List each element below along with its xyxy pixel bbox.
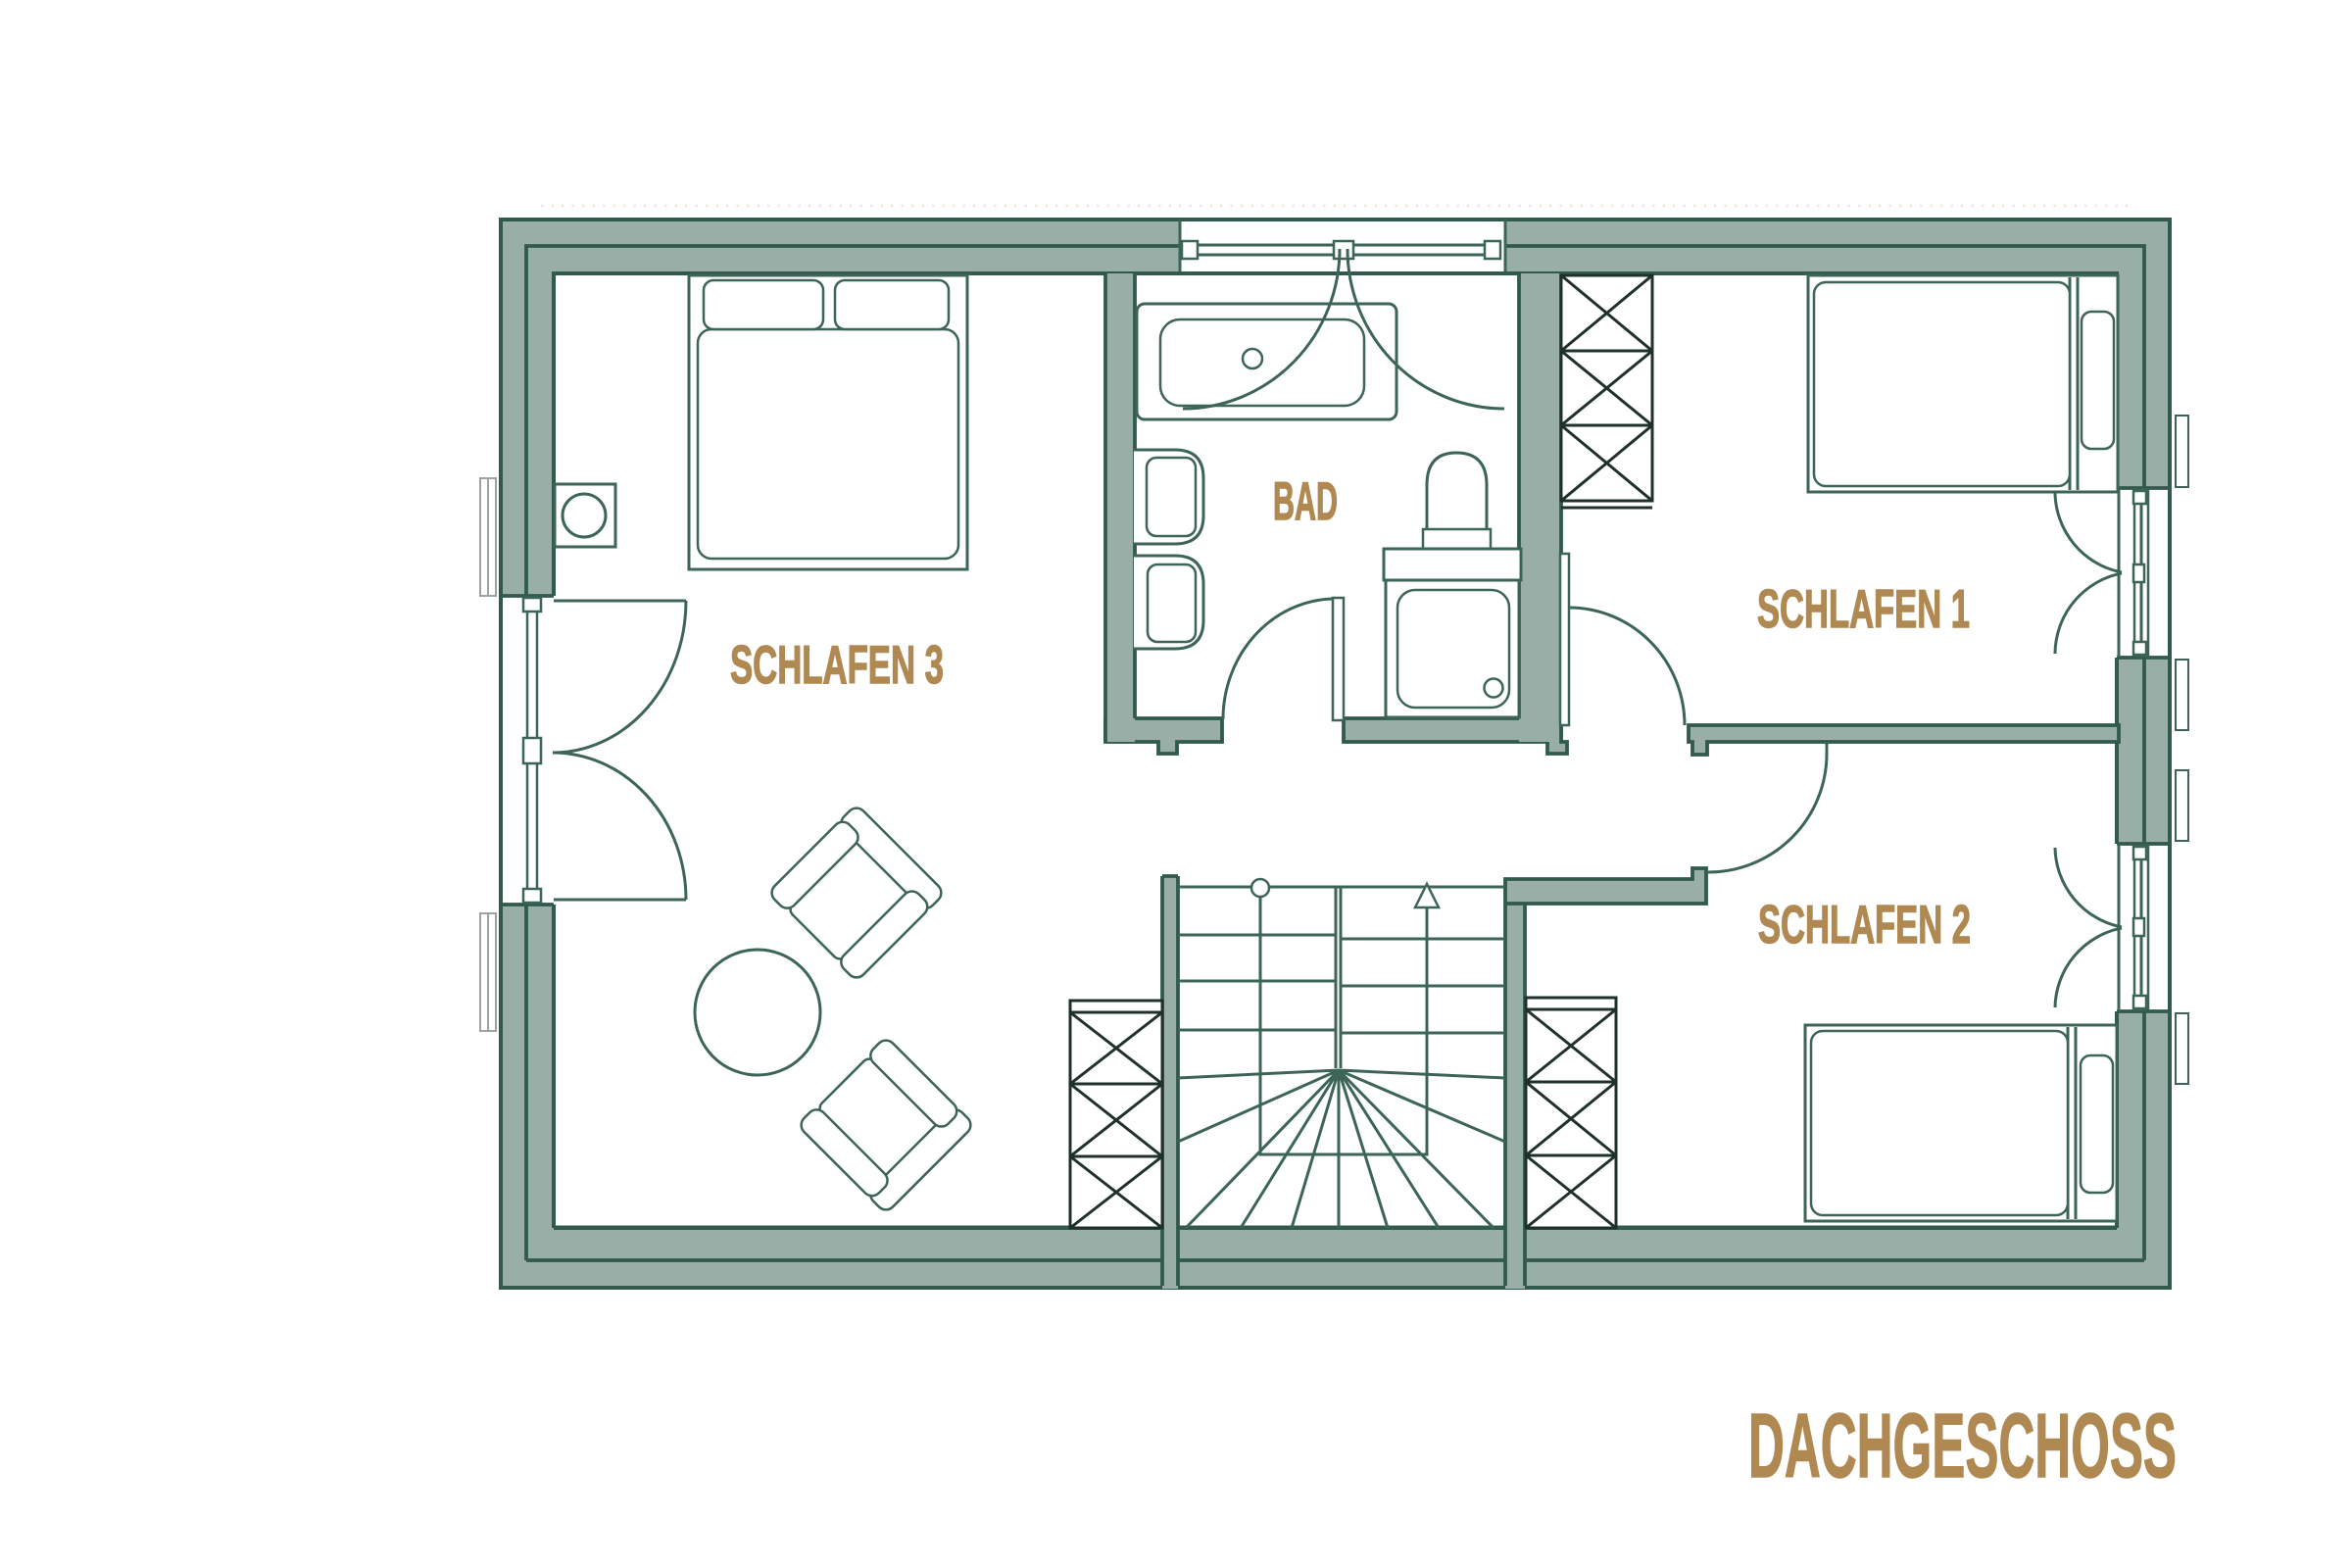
svg-text:DACHGESCHOSS: DACHGESCHOSS: [1748, 1395, 2177, 1496]
svg-text:BAD: BAD: [1273, 470, 1338, 531]
svg-text:SCHLAFEN 3: SCHLAFEN 3: [730, 634, 944, 695]
svg-text:SCHLAFEN 2: SCHLAFEN 2: [1758, 894, 1971, 955]
svg-text:SCHLAFEN 1: SCHLAFEN 1: [1757, 578, 1970, 639]
